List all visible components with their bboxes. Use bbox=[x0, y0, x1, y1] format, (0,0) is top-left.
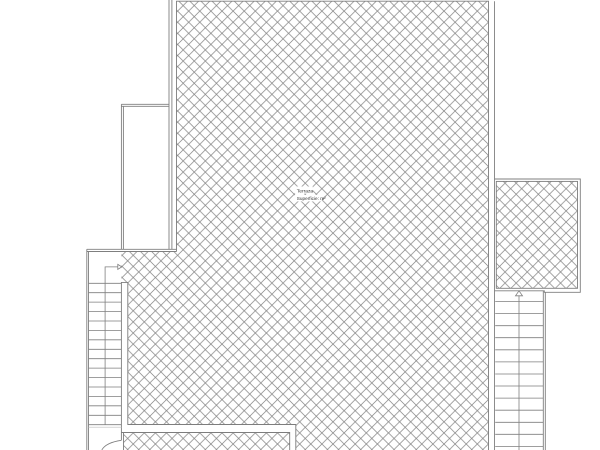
svg-text:Terraza: Terraza bbox=[297, 188, 314, 194]
svg-text:Superficie: m²: Superficie: m² bbox=[297, 196, 326, 201]
